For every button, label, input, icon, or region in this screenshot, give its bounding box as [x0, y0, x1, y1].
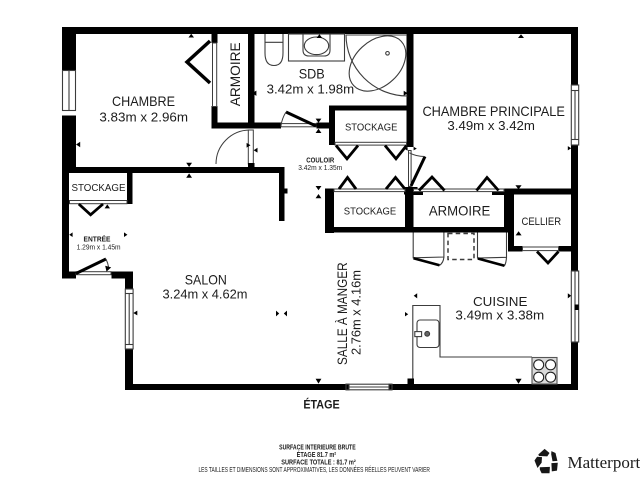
svg-text:SDB: SDB: [299, 67, 325, 82]
svg-text:ÉTAGE: ÉTAGE: [303, 398, 340, 411]
svg-text:3.42m x 1.35m: 3.42m x 1.35m: [298, 163, 342, 172]
svg-text:SURFACE INTERIEURE BRUTE: SURFACE INTERIEURE BRUTE: [279, 445, 356, 452]
svg-text:SURFACE TOTALE : 81.7 m²: SURFACE TOTALE : 81.7 m²: [281, 460, 356, 467]
svg-text:STOCKAGE: STOCKAGE: [72, 183, 126, 194]
svg-text:3.42m x 1.98m: 3.42m x 1.98m: [267, 81, 355, 96]
svg-text:CHAMBRE PRINCIPALE: CHAMBRE PRINCIPALE: [422, 104, 565, 119]
svg-text:LES TAILLES ET DIMENSIONS SONT: LES TAILLES ET DIMENSIONS SONT APPROXIMA…: [198, 465, 430, 474]
svg-text:CHAMBRE: CHAMBRE: [112, 94, 175, 109]
svg-text:STOCKAGE: STOCKAGE: [344, 207, 397, 218]
svg-text:SALON: SALON: [185, 272, 227, 287]
svg-text:2.76m x 4.16m: 2.76m x 4.16m: [349, 270, 364, 355]
svg-text:CELLIER: CELLIER: [521, 216, 561, 228]
svg-text:1.29m x 1.45m: 1.29m x 1.45m: [77, 242, 121, 251]
svg-text:STOCKAGE: STOCKAGE: [345, 122, 398, 133]
svg-text:3.49m x 3.38m: 3.49m x 3.38m: [455, 308, 544, 323]
svg-text:ARMOIRE: ARMOIRE: [429, 204, 491, 219]
svg-text:ARMOIRE: ARMOIRE: [228, 42, 243, 106]
svg-text:3.49m x 3.42m: 3.49m x 3.42m: [447, 118, 535, 133]
svg-text:3.24m x 4.62m: 3.24m x 4.62m: [163, 287, 248, 302]
svg-text:3.83m x 2.96m: 3.83m x 2.96m: [99, 109, 188, 124]
svg-text:ÉTAGE 81.7 m²: ÉTAGE 81.7 m²: [297, 450, 337, 459]
svg-text:Matterport: Matterport: [568, 453, 640, 472]
